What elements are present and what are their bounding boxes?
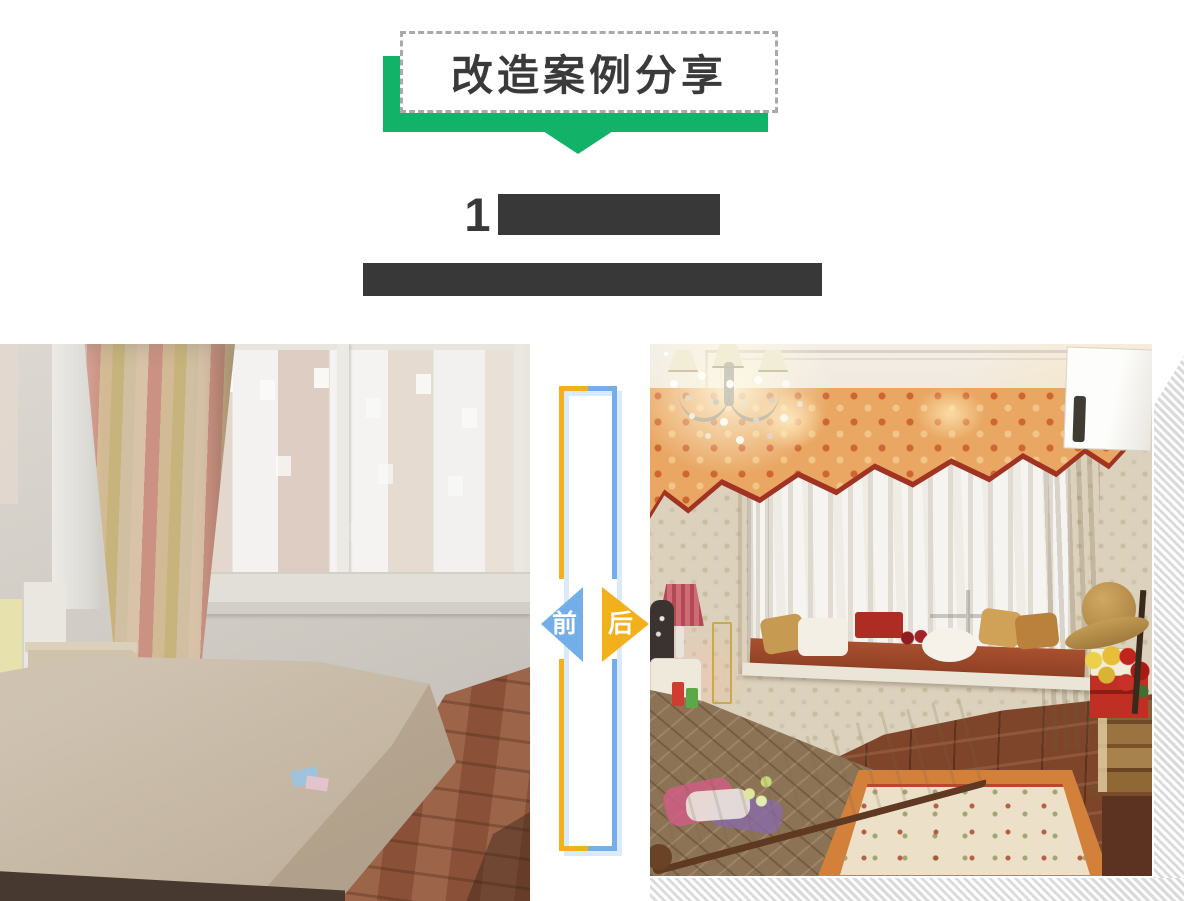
case-title-row: 1 [0, 189, 1184, 239]
banner-dashed-box: 改造案例分享 [400, 31, 778, 113]
gold-pillow [1014, 612, 1059, 650]
necklace-bust [650, 600, 674, 662]
frame-left-upper [559, 391, 564, 579]
frame-left-lower [559, 659, 564, 846]
banner-pointer-triangle [543, 131, 613, 154]
before-photo [0, 344, 530, 901]
after-photo [650, 344, 1184, 901]
case-title-visible-prefix: 1 [464, 191, 490, 238]
chandelier-crystals [664, 352, 668, 356]
window-mullion [337, 344, 349, 576]
ac-vent [1072, 396, 1086, 442]
after-photo-content [650, 344, 1152, 876]
page: 改造案例分享 1 [0, 0, 1184, 901]
air-conditioner [1063, 346, 1152, 451]
red-candle [672, 682, 684, 706]
redacted-title-bar [498, 194, 720, 235]
red-flowers [1112, 642, 1152, 700]
window-mullion [514, 344, 524, 576]
old-curtain-sliver [0, 344, 18, 504]
photo-hatch-edge-right [1154, 356, 1184, 901]
window-sill [192, 602, 530, 614]
gold-stand [712, 622, 732, 704]
after-label: 后 [608, 612, 633, 637]
banner-title: 改造案例分享 [451, 42, 727, 103]
before-label: 前 [552, 612, 577, 637]
side-table [1102, 796, 1152, 876]
old-window-panes [200, 350, 524, 574]
window-bottom-rail [192, 572, 530, 604]
frame-right-lower [612, 659, 617, 846]
frame-bottom-left [559, 846, 588, 851]
redacted-subtitle-bar [363, 263, 822, 296]
green-candle [686, 688, 698, 708]
frame-right-upper [612, 391, 617, 579]
downlight-glow [915, 386, 985, 441]
red-case [855, 612, 903, 638]
frame-bottom-right [588, 846, 617, 851]
white-pillow [798, 618, 848, 656]
photo-hatch-edge-bottom [650, 878, 1184, 901]
fur-pillow [922, 628, 977, 662]
table-lamp-base [676, 626, 684, 658]
old-window [192, 344, 530, 602]
